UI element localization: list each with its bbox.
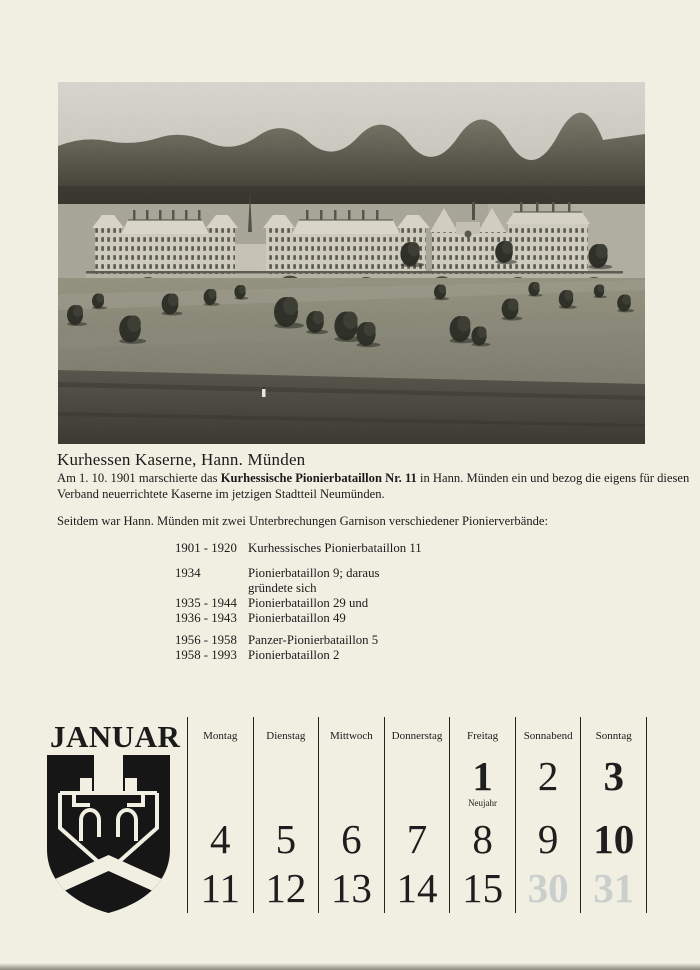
day-number: 3: [603, 758, 624, 796]
unit-label: Kurhessisches Pionierbataillon 11: [248, 541, 422, 556]
weekday-header-freitag: Freitag: [449, 717, 515, 757]
day-cell-1: 1 Neujahr: [449, 757, 515, 814]
history-row: 1934 Pionierbataillon 9; daraus: [175, 566, 422, 581]
unit-label: Pionierbataillon 29 und: [248, 596, 368, 611]
day-cell-8: 8: [449, 814, 515, 865]
years-label: 1901 - 1920: [175, 541, 248, 556]
day-number: 10: [593, 821, 634, 859]
day-cell-15: 15: [449, 865, 515, 913]
day-number: 1: [472, 758, 493, 796]
unit-label: Pionierbataillon 49: [248, 611, 346, 626]
history-paragraph: Am 1. 10. 1901 marschierte das Kurhessis…: [57, 471, 697, 502]
weekday-header-sonnabend: Sonnabend: [515, 717, 581, 757]
page-bottom-edge: [0, 962, 700, 970]
day-cell-5: 5: [253, 814, 319, 865]
calendar-month-title: JANUAR: [50, 719, 180, 755]
calendar-page: Kurhessen Kaserne, Hann. Münden Am 1. 10…: [0, 0, 700, 970]
weekday-header-dienstag: Dienstag: [253, 717, 319, 757]
day-cell-10: 10: [580, 814, 646, 865]
day-cell-3: 3: [580, 757, 646, 814]
day-cell-4: 4: [187, 814, 253, 865]
unit-name-bold: Kurhessische Pionierbataillon Nr. 11: [221, 471, 417, 485]
years-label: 1935 - 1944: [175, 596, 248, 611]
day-number: 11: [201, 870, 240, 908]
unit-label: Panzer-Pionierbataillon 5: [248, 633, 378, 648]
pionier-bridge-crest-icon: [44, 753, 173, 916]
day-cell-13: 13: [318, 865, 384, 913]
years-label: 1934: [175, 566, 248, 581]
day-number: 12: [265, 870, 306, 908]
day-cell-empty: [253, 757, 319, 814]
weekday-header-sonntag: Sonntag: [580, 717, 646, 757]
history-paragraph-line2: Verband neuerrichtete Kaserne im jetzige…: [57, 487, 697, 503]
day-number: 6: [341, 821, 362, 859]
day-number: 8: [472, 821, 493, 859]
day-number: 7: [407, 821, 428, 859]
history-row: 1956 - 1958 Panzer-Pionierbataillon 5: [175, 633, 422, 648]
day-cell-31-showthrough: 31: [580, 865, 646, 913]
history-row: 1935 - 1944 Pionierbataillon 29 und: [175, 596, 422, 611]
years-label: 1956 - 1958: [175, 633, 248, 648]
day-number: 14: [396, 870, 437, 908]
day-number: 4: [210, 821, 231, 859]
history-row: 1936 - 1943 Pionierbataillon 49: [175, 611, 422, 626]
day-cell-6: 6: [318, 814, 384, 865]
day-cell-14: 14: [384, 865, 450, 913]
weekday-header-mittwoch: Mittwoch: [318, 717, 384, 757]
day-number: 2: [538, 758, 559, 796]
years-label: 1958 - 1993: [175, 648, 248, 663]
day-cell-7: 7: [384, 814, 450, 865]
calendar-grid: Montag Dienstag Mittwoch Donnerstag Frei…: [187, 717, 647, 913]
garrison-history-list: 1901 - 1920 Kurhessisches Pionierbataill…: [175, 541, 422, 663]
day-number: 9: [538, 821, 559, 859]
day-number: 15: [462, 870, 503, 908]
photo-caption-title: Kurhessen Kaserne, Hann. Münden: [57, 450, 305, 470]
day-cell-12: 12: [253, 865, 319, 913]
day-cell-empty: [384, 757, 450, 814]
day-cell-30-showthrough: 30: [515, 865, 581, 913]
day-cell-2: 2: [515, 757, 581, 814]
history-row: 1901 - 1920 Kurhessisches Pionierbataill…: [175, 541, 422, 556]
years-label: 1936 - 1943: [175, 611, 248, 626]
day-cell-empty: [187, 757, 253, 814]
day-cell-11: 11: [187, 865, 253, 913]
ghost-day-number: 30: [528, 870, 569, 908]
unit-label: Pionierbataillon 2: [248, 648, 339, 663]
unit-label: Pionierbataillon 9; daraus: [248, 566, 380, 581]
day-cell-empty: [318, 757, 384, 814]
holiday-label: Neujahr: [468, 798, 497, 808]
day-cell-9: 9: [515, 814, 581, 865]
history-row-continuation: gründete sich: [175, 581, 422, 596]
garrison-intro: Seitdem war Hann. Münden mit zwei Unterb…: [57, 514, 548, 529]
weekday-header-montag: Montag: [187, 717, 253, 757]
history-row: 1958 - 1993 Pionierbataillon 2: [175, 648, 422, 663]
kaserne-photo: [58, 82, 645, 444]
weekday-header-donnerstag: Donnerstag: [384, 717, 450, 757]
barracks-photo-illustration: [58, 82, 645, 444]
day-number: 13: [331, 870, 372, 908]
day-number: 5: [276, 821, 297, 859]
history-paragraph-line1: Am 1. 10. 1901 marschierte das Kurhessis…: [57, 471, 697, 487]
ghost-day-number: 31: [593, 870, 634, 908]
unit-label: gründete sich: [248, 581, 317, 596]
